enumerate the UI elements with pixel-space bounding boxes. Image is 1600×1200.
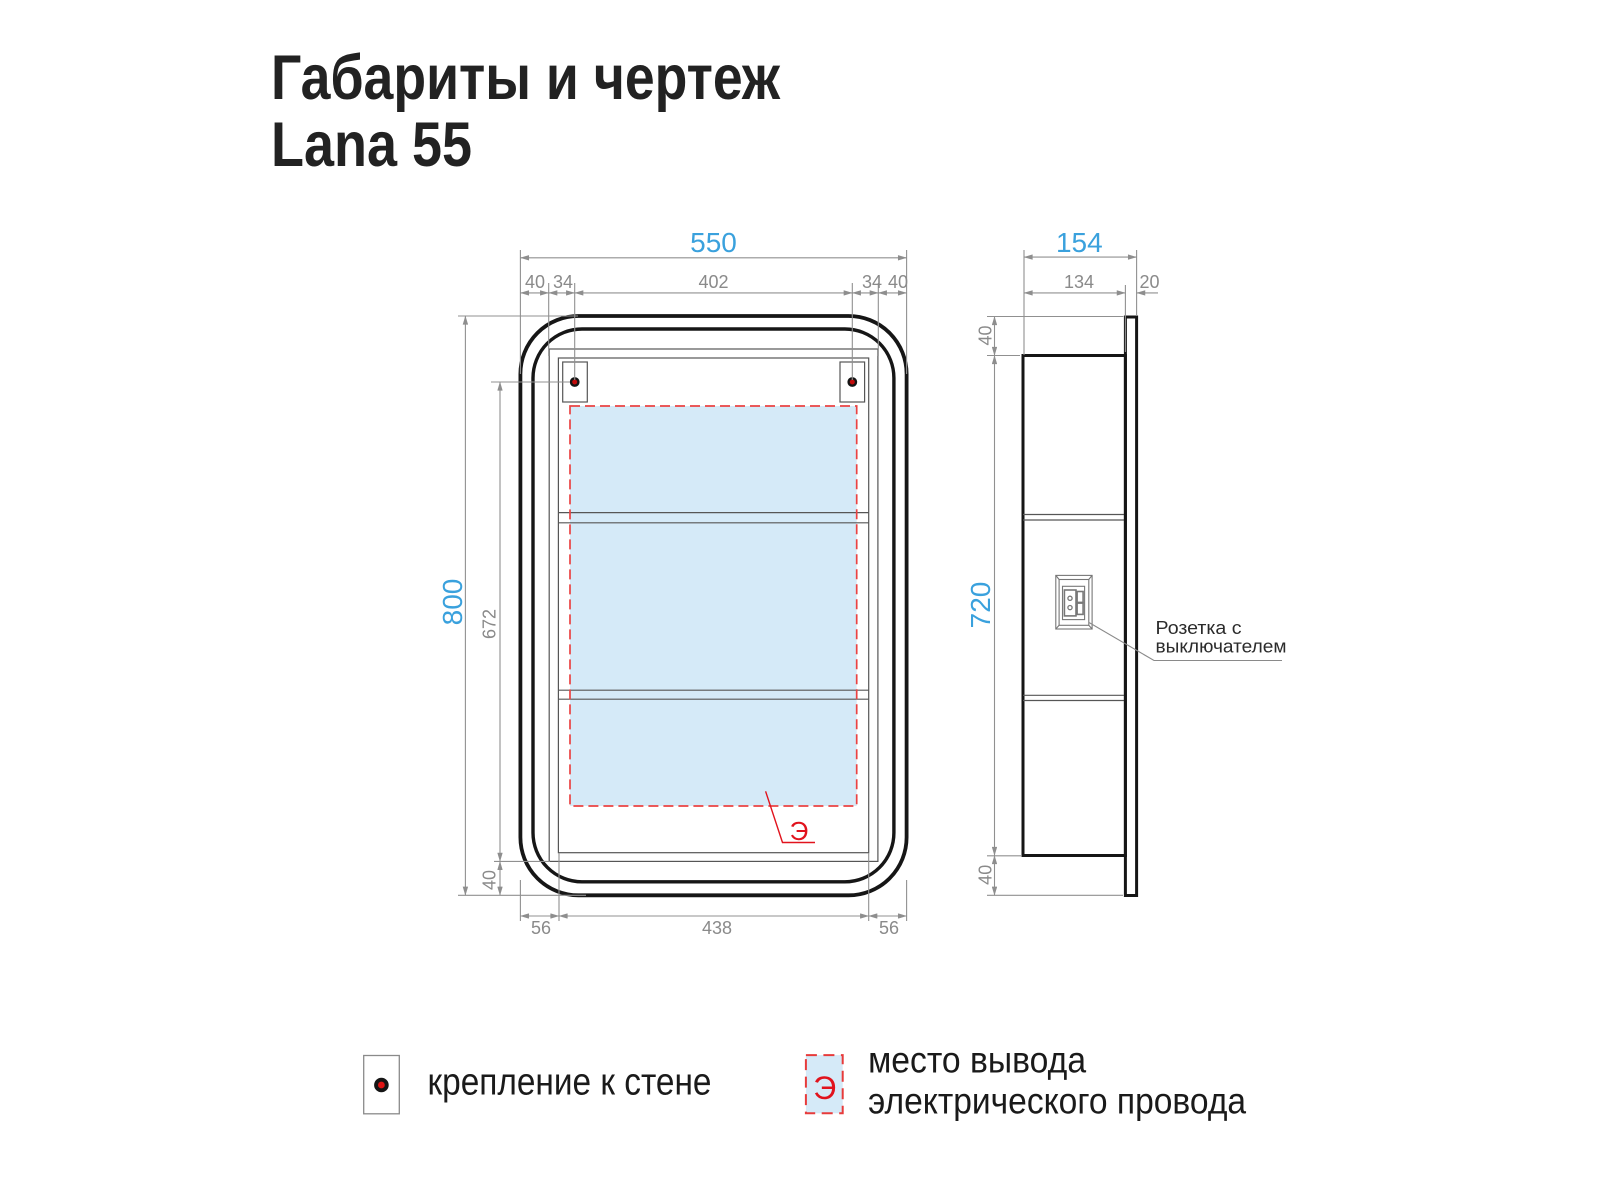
- svg-text:800: 800: [437, 579, 468, 626]
- svg-text:место вывода: место вывода: [868, 1040, 1086, 1081]
- svg-text:550: 550: [690, 227, 737, 258]
- svg-text:20: 20: [1139, 272, 1159, 292]
- svg-text:672: 672: [480, 609, 500, 639]
- svg-text:56: 56: [531, 918, 551, 938]
- svg-text:134: 134: [1064, 272, 1094, 292]
- svg-text:34: 34: [553, 272, 573, 292]
- svg-text:402: 402: [698, 272, 728, 292]
- svg-text:56: 56: [879, 918, 899, 938]
- svg-text:40: 40: [480, 870, 500, 890]
- svg-text:40: 40: [888, 272, 908, 292]
- svg-text:Розетка с: Розетка с: [1156, 618, 1242, 638]
- svg-text:720: 720: [965, 582, 996, 629]
- svg-text:438: 438: [702, 918, 732, 938]
- svg-text:крепление к стене: крепление к стене: [428, 1062, 712, 1104]
- svg-text:выключателем: выключателем: [1156, 637, 1287, 657]
- svg-text:Э: Э: [790, 816, 809, 846]
- svg-text:40: 40: [976, 325, 996, 345]
- svg-text:34: 34: [862, 272, 882, 292]
- svg-text:40: 40: [525, 272, 545, 292]
- svg-text:электрического провода: электрического провода: [868, 1081, 1246, 1122]
- svg-text:Lana 55: Lana 55: [271, 110, 472, 180]
- svg-text:Габариты и чертеж: Габариты и чертеж: [271, 43, 781, 113]
- svg-text:40: 40: [976, 865, 996, 885]
- svg-text:Э: Э: [813, 1070, 836, 1106]
- svg-text:154: 154: [1056, 227, 1103, 258]
